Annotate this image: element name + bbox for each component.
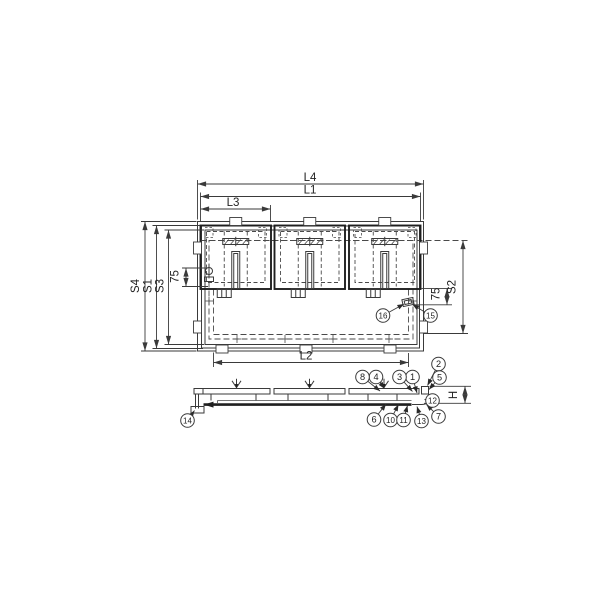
callout-leader-11 bbox=[405, 406, 407, 414]
callout-leader-13 bbox=[417, 407, 419, 415]
section-lid-segments bbox=[203, 389, 419, 395]
dim-label-L3: L3 bbox=[227, 197, 240, 209]
callout-leader-10 bbox=[394, 405, 399, 414]
latch-detail bbox=[402, 297, 414, 306]
callout-10: 10 bbox=[384, 405, 399, 427]
section-lid-2 bbox=[274, 389, 345, 395]
latch-body bbox=[402, 297, 414, 306]
dim-label-S1: S1 bbox=[143, 279, 155, 293]
lid-1-outline bbox=[201, 226, 272, 290]
lock-detail bbox=[205, 264, 214, 282]
anchor-tab-top bbox=[230, 218, 242, 226]
callout-number-1: 1 bbox=[410, 372, 415, 382]
lid-1-stay-bracket bbox=[217, 289, 231, 298]
section-view bbox=[191, 379, 429, 413]
callout-leader-15 bbox=[413, 305, 425, 312]
callout-number-8: 8 bbox=[360, 372, 365, 382]
section-ribs bbox=[211, 394, 397, 401]
callout-number-3: 3 bbox=[397, 372, 402, 382]
lid-2-outline bbox=[275, 226, 346, 290]
plan-lids bbox=[201, 226, 421, 298]
callout-1: 1 bbox=[406, 370, 420, 393]
dim-label-L1: L1 bbox=[304, 185, 317, 197]
lid-2-stay-bracket bbox=[291, 289, 305, 298]
callout-11: 11 bbox=[397, 406, 411, 427]
anchor-tab-bottom bbox=[216, 345, 228, 353]
lid-3-slot-inner bbox=[383, 254, 387, 289]
callout-number-13: 13 bbox=[417, 417, 426, 426]
callout-4: 4 bbox=[369, 370, 384, 389]
anchor-tab-bottom bbox=[384, 345, 396, 353]
dim-label-offset-left: 75 bbox=[170, 270, 182, 283]
lid-1-handle-hatch bbox=[243, 240, 247, 245]
callout-16: 16 bbox=[376, 304, 404, 322]
lid-3-stay-bracket bbox=[366, 289, 380, 298]
callout-number-6: 6 bbox=[371, 415, 376, 425]
dim-label-L4: L4 bbox=[304, 172, 317, 184]
callout-number-14: 14 bbox=[183, 417, 192, 426]
technical-drawing-canvas: L4 L1 L3 S4 S1 S3 75 S2 75 L2 bbox=[0, 0, 600, 600]
anchor-tab-top bbox=[379, 218, 391, 226]
dim-label-S4: S4 bbox=[130, 278, 142, 293]
callout-13: 13 bbox=[415, 407, 429, 428]
callout-number-10: 10 bbox=[386, 416, 395, 425]
edge-tabs bbox=[194, 218, 428, 354]
callout-leader-16 bbox=[389, 304, 404, 312]
callout-number-16: 16 bbox=[379, 312, 388, 321]
lid-3-outline bbox=[349, 226, 421, 290]
latch-inner bbox=[404, 300, 412, 305]
lid-1-slot-inner bbox=[234, 254, 238, 289]
callout-14: 14 bbox=[181, 411, 195, 428]
callout-number-7: 7 bbox=[436, 412, 441, 422]
callout-15: 15 bbox=[413, 305, 438, 323]
frame-inner-edge bbox=[205, 230, 417, 345]
section-lid-3 bbox=[349, 389, 419, 395]
section-lid-1 bbox=[203, 389, 270, 395]
anchor-tab-top bbox=[304, 218, 316, 226]
callout-balloons: 1234567810111213141516 bbox=[181, 304, 447, 428]
dim-label-H: H bbox=[448, 391, 460, 399]
lid-3 bbox=[349, 226, 421, 298]
anchor-tab-left bbox=[194, 242, 202, 254]
callout-number-2: 2 bbox=[436, 359, 441, 369]
anchor-tab-right bbox=[420, 321, 428, 333]
callout-number-5: 5 bbox=[437, 373, 442, 383]
dim-label-L2: L2 bbox=[300, 351, 313, 363]
lid-1 bbox=[201, 226, 272, 298]
plan-view bbox=[194, 218, 469, 354]
dim-label-offset-right: 75 bbox=[431, 288, 443, 301]
dim-label-S3: S3 bbox=[155, 279, 167, 293]
anchor-tab-right bbox=[420, 242, 428, 254]
lid-1-handle-hatch bbox=[225, 240, 229, 245]
callout-6: 6 bbox=[367, 404, 386, 426]
callout-7: 7 bbox=[427, 405, 446, 424]
callout-number-12: 12 bbox=[428, 397, 437, 406]
section-left-frame-edge bbox=[194, 389, 203, 395]
section-right-lip bbox=[422, 387, 429, 395]
callout-number-11: 11 bbox=[399, 416, 408, 425]
callout-number-4: 4 bbox=[373, 372, 378, 382]
dim-label-S2: S2 bbox=[447, 280, 459, 294]
lid-2 bbox=[275, 226, 346, 298]
anchor-tab-left bbox=[194, 321, 202, 333]
section-left-arrow bbox=[204, 402, 214, 408]
lid-2-slot-inner bbox=[308, 254, 312, 289]
callout-number-15: 15 bbox=[426, 312, 435, 321]
